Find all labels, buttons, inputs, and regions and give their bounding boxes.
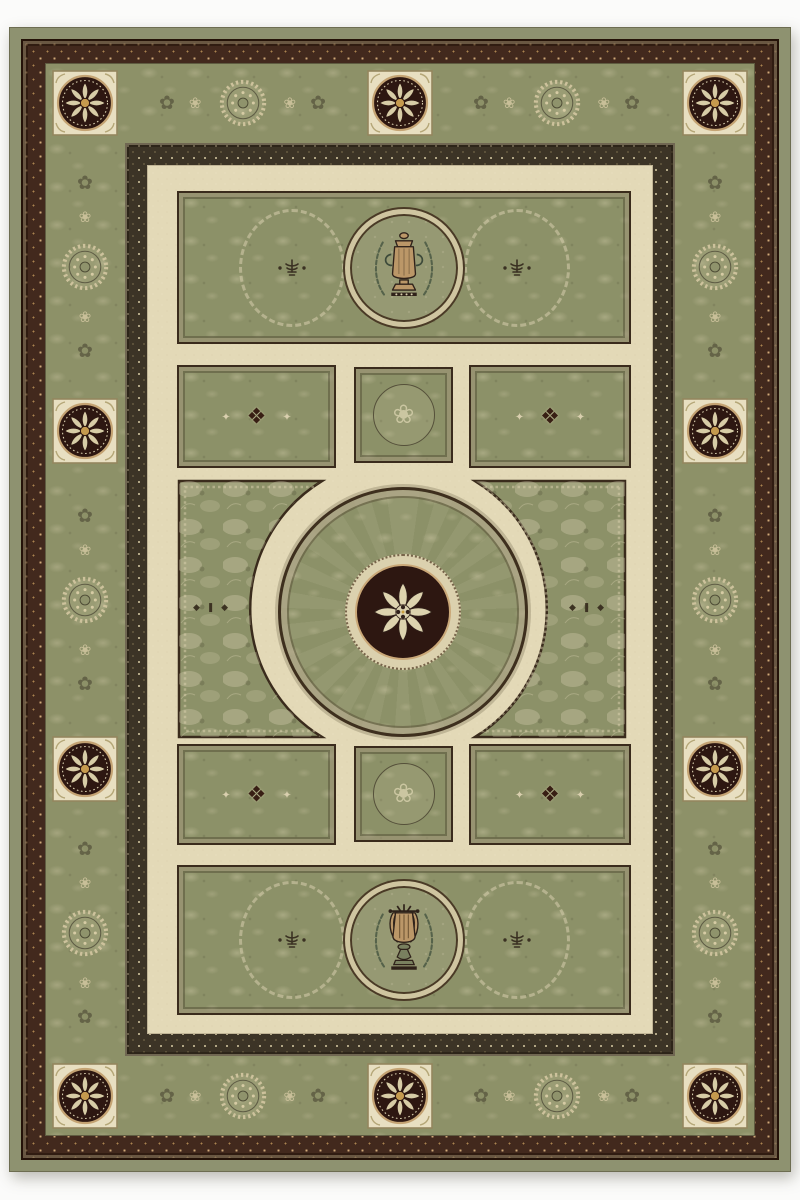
diamond-motif-group: ✦ ❖ ✦ [221,404,291,429]
wreath-medallion-icon [58,240,112,294]
rosette-medallion-icon [682,1063,748,1129]
inscribed-circle: ❀ [373,384,435,446]
spark-motif: ✦ [282,410,291,423]
diamond-motif: ❖ [247,404,267,429]
spray-motif: ✿ [707,505,723,527]
spark-motif: ✦ [576,410,585,423]
urn-icon [370,227,438,309]
wreath-medallion-icon [216,76,270,130]
diamond-motif: ❖ [540,782,560,807]
edge-motif: ◆ ❚ ◆ [193,603,230,613]
floret-motif: ❀ [284,1087,297,1105]
floret-motif: ❀ [503,1087,516,1105]
center-medallion [278,487,528,737]
floret-motif: ❀ [393,779,415,809]
spray-motif: ✿ [77,1006,93,1028]
spray-motif: ✿ [77,673,93,695]
border-segment: ✿ ❀ ❀ ✿ [52,482,118,717]
rosette-medallion-icon [367,1063,433,1129]
spray-motif: ✿ [310,92,326,114]
spray-motif: ✿ [310,1085,326,1107]
spray-motif: ✿ [707,673,723,695]
border-segment: ✿ ❀ ❀ ✿ [52,149,118,384]
diamond-motif-group: ✦ ❖ ✦ [221,782,291,807]
wreath-medallion-icon [58,906,112,960]
spark-motif: ✦ [515,788,524,801]
lyre-medallion [345,881,463,999]
scroll-rect-panel: ✦ ❖ ✦ [177,365,336,468]
center-medallion-ring [345,554,461,670]
border-segment: ✿ ❀ ❀ ✿ [682,149,748,384]
spray-motif: ✿ [707,172,723,194]
border-segment: ✿ ❀ ❀ ✿ [682,482,748,717]
diamond-motif-group: ✦ ❖ ✦ [515,782,585,807]
spray-motif: ✿ [473,92,489,114]
wreath-medallion-icon [530,1069,584,1123]
rug-product-photo: Product photograph of a traditional Aubu… [0,0,800,1200]
rug: ✿ ❀ ❀ ✿ ✿ ❀ ❀ ✿ ✿ ❀ ❀ ✿ ✿ ❀ ❀ ✿ ✿ [9,27,791,1172]
spray-motif: ✿ [473,1085,489,1107]
floret-motif: ❀ [709,974,722,992]
spark-motif: ✦ [576,788,585,801]
border-segment: ✿ ❀ ❀ ✿ [52,815,118,1050]
spray-motif: ✿ [77,838,93,860]
spray-motif: ✿ [624,1085,640,1107]
scroll-rect-panel: ✦ ❖ ✦ [469,744,631,845]
wreath-medallion-icon [58,573,112,627]
border-segment: ✿ ❀ ❀ ✿ [682,815,748,1050]
spark-motif: ✦ [282,788,291,801]
rosette-medallion-icon [682,398,748,464]
spray-motif: ✿ [159,92,175,114]
spray-motif: ✿ [707,1006,723,1028]
wreath-medallion-icon [688,573,742,627]
diamond-motif: ❖ [247,782,267,807]
floret-motif: ❀ [709,208,722,226]
floret-motif: ❀ [284,94,297,112]
edge-motif: ◆ ❚ ◆ [569,603,606,613]
floret-motif: ❀ [598,94,611,112]
eight-petal-flower-icon [363,572,443,652]
inscribed-circle: ❀ [373,763,435,825]
spark-motif: ✦ [221,788,230,801]
center-medallion-core [355,564,451,660]
spray-motif: ✿ [77,505,93,527]
floret-motif: ❀ [709,541,722,559]
spark-motif: ✦ [515,410,524,423]
wreath-medallion-icon [216,1069,270,1123]
scroll-rect-panel: ✦ ❖ ✦ [469,365,631,468]
rosette-medallion-icon [52,736,118,802]
rosette-medallion-icon [682,70,748,136]
scroll-rect-panel: ✦ ❖ ✦ [177,744,336,845]
rosette-medallion-icon [52,398,118,464]
rosette-medallion-icon [367,70,433,136]
border-segment: ✿ ❀ ❀ ✿ [125,70,360,136]
rosette-medallion-icon [682,736,748,802]
wreath-medallion-icon [688,906,742,960]
spray-motif: ✿ [77,340,93,362]
spray-motif: ✿ [159,1085,175,1107]
floret-motif: ❀ [79,974,92,992]
circle-square-panel: ❀ [354,367,453,463]
candelabrum-sprig-icon [502,928,532,952]
bottom-lyre-panel [177,865,631,1015]
floret-motif: ❀ [709,308,722,326]
floret-motif: ❀ [79,874,92,892]
floret-motif: ❀ [598,1087,611,1105]
floret-motif: ❀ [79,541,92,559]
floret-motif: ❀ [709,641,722,659]
spray-motif: ✿ [707,340,723,362]
floret-motif: ❀ [393,400,415,430]
candelabrum-sprig-icon [277,256,307,280]
border-segment: ✿ ❀ ❀ ✿ [439,70,674,136]
top-urn-panel [177,191,631,344]
floret-motif: ❀ [503,94,516,112]
urn-medallion [345,209,463,327]
floret-motif: ❀ [79,641,92,659]
floret-motif: ❀ [709,874,722,892]
candelabrum-sprig-icon [277,928,307,952]
diamond-motif: ❖ [540,404,560,429]
rosette-medallion-icon [52,70,118,136]
spark-motif: ✦ [221,410,230,423]
floret-motif: ❀ [79,208,92,226]
spray-motif: ✿ [707,838,723,860]
spray-motif: ✿ [624,92,640,114]
wreath-medallion-icon [530,76,584,130]
circle-square-panel: ❀ [354,746,453,842]
floret-motif: ❀ [189,94,202,112]
floret-motif: ❀ [189,1087,202,1105]
spray-motif: ✿ [77,172,93,194]
lyre-icon [370,899,438,981]
candelabrum-sprig-icon [502,256,532,280]
wreath-medallion-icon [688,240,742,294]
border-segment: ✿ ❀ ❀ ✿ [125,1063,360,1129]
floret-motif: ❀ [79,308,92,326]
diamond-motif-group: ✦ ❖ ✦ [515,404,585,429]
rosette-medallion-icon [52,1063,118,1129]
border-segment: ✿ ❀ ❀ ✿ [439,1063,674,1129]
